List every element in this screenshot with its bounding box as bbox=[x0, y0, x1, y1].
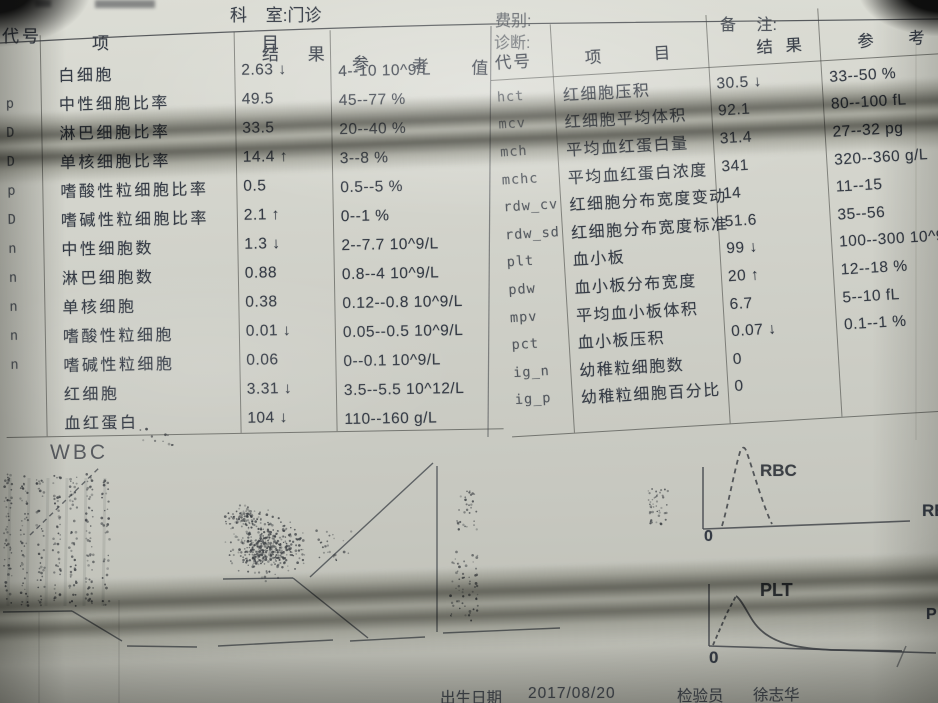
row-reference: 33--50 % bbox=[821, 62, 938, 87]
row-reference bbox=[839, 374, 938, 381]
row-result: 0 bbox=[727, 372, 840, 397]
row-item: 单核细胞 bbox=[44, 290, 238, 317]
row-result: 0 bbox=[725, 345, 838, 370]
row-code: pct bbox=[506, 334, 569, 354]
row-reference: 3.5--5.5 10^12/L bbox=[336, 372, 506, 400]
row-code: mcv bbox=[493, 114, 556, 134]
right-header-item: 项 目 bbox=[584, 38, 695, 68]
cbc-table-left: 白细胞2.63 ↓4--10 10^9/Lp中性细胞比率49.545--77 %… bbox=[0, 47, 507, 441]
glare-band bbox=[0, 551, 938, 666]
row-code: rdw_sd bbox=[500, 224, 563, 244]
row-item: 嗜酸性粒细胞 bbox=[45, 319, 239, 346]
plt-axis-zero: 0 bbox=[709, 648, 718, 668]
cut-text-fragment bbox=[95, 0, 155, 8]
row-code: n bbox=[4, 298, 44, 315]
row-item: 中性细胞数 bbox=[43, 232, 237, 259]
row-reference: 0--1 % bbox=[333, 198, 503, 226]
row-code bbox=[6, 393, 46, 394]
row-code: D bbox=[3, 211, 43, 228]
row-code: mpv bbox=[505, 306, 568, 326]
row-reference: 0.5--5 % bbox=[332, 169, 502, 197]
row-result: 49.5 bbox=[235, 89, 331, 109]
row-code: D bbox=[1, 124, 41, 141]
row-reference: 0--0.1 10^9/L bbox=[335, 343, 505, 371]
row-result: 0.01 ↓ bbox=[239, 321, 335, 341]
row-code: hct bbox=[491, 86, 554, 106]
row-result: 0.38 bbox=[238, 292, 334, 312]
row-reference: 27--32 pg bbox=[824, 117, 938, 142]
row-result: 30.5 ↓ bbox=[709, 69, 822, 94]
row-reference: 35--56 bbox=[829, 200, 938, 225]
row-result: 104 ↓ bbox=[240, 408, 336, 428]
left-header-code: 代号 bbox=[2, 22, 42, 47]
row-result: 2.63 ↓ bbox=[234, 60, 330, 80]
row-reference: 12--18 % bbox=[832, 255, 938, 280]
examiner-name: 徐志华 bbox=[753, 683, 800, 703]
row-code: p bbox=[2, 182, 42, 199]
row-code: ig_n bbox=[508, 362, 571, 382]
rbc-axis-zero: 0 bbox=[704, 528, 713, 546]
row-reference: 11--15 bbox=[827, 172, 938, 197]
row-result: 33.5 bbox=[235, 118, 331, 138]
birth-date-label: 出生日期 bbox=[440, 686, 502, 703]
row-item: 单核细胞比率 bbox=[42, 145, 236, 172]
row-reference: 45--77 % bbox=[331, 82, 501, 110]
row-result: 0.5 bbox=[236, 176, 332, 196]
right-header-reference: 参 考 值 bbox=[856, 20, 938, 52]
row-code: n bbox=[5, 356, 45, 373]
cbc-table-right: 代号 项 目 结 果 参 考 值 hct红细胞压积30.5 ↓33--50 %m… bbox=[489, 21, 938, 445]
row-result: 3.31 ↓ bbox=[240, 379, 336, 399]
row-reference: 0.8--4 10^9/L bbox=[334, 256, 504, 284]
examiner-label: 检验员 bbox=[677, 684, 724, 703]
row-reference bbox=[838, 346, 938, 353]
row-code: p bbox=[1, 95, 41, 112]
row-item: 血红蛋白 bbox=[46, 406, 240, 433]
row-reference: 0.12--0.8 10^9/L bbox=[334, 285, 504, 313]
row-item: 嗜碱性粒细胞 bbox=[45, 348, 239, 375]
row-code: ig_p bbox=[509, 389, 572, 409]
row-item: 淋巴细胞比率 bbox=[41, 116, 235, 143]
row-reference: 4--10 10^9/L bbox=[330, 53, 500, 81]
plt-axis-edge-label: P bbox=[926, 606, 937, 624]
wbc-scattergram-label: WBC bbox=[50, 441, 108, 465]
rbc-axis-edge-label: RB bbox=[922, 501, 938, 521]
row-item: 白细胞 bbox=[40, 58, 234, 85]
lab-report-photo: 科 室:门诊 费别: 备 注: 诊断: 代号 项 目 结 果 参 考 值 白细胞… bbox=[0, 0, 938, 703]
table-bottom-border bbox=[512, 410, 938, 438]
row-code bbox=[6, 422, 46, 423]
row-item: 嗜碱性粒细胞比率 bbox=[43, 203, 237, 230]
paper-crease bbox=[118, 600, 120, 703]
row-result: 0.06 bbox=[239, 350, 335, 370]
row-result: 31.4 bbox=[712, 124, 825, 149]
row-reference: 80--100 fL bbox=[822, 89, 938, 114]
row-code: pdw bbox=[503, 279, 566, 299]
row-reference: 3--8 % bbox=[332, 140, 502, 168]
right-header-code: 代号 bbox=[494, 48, 532, 74]
row-item: 淋巴细胞数 bbox=[44, 261, 238, 288]
row-reference: 0.05--0.5 10^9/L bbox=[335, 314, 505, 342]
paper-crease bbox=[38, 612, 40, 703]
row-result: 0.07 ↓ bbox=[724, 317, 837, 342]
row-code: mch bbox=[495, 141, 558, 161]
row-result: 14.4 ↑ bbox=[236, 147, 332, 167]
row-result: 6.7 bbox=[722, 290, 835, 315]
row-code: plt bbox=[501, 251, 564, 271]
row-result: 341 bbox=[714, 152, 827, 177]
row-item: 红细胞 bbox=[46, 377, 240, 404]
right-header-result: 结 果 bbox=[756, 31, 807, 58]
row-code: D bbox=[2, 153, 42, 170]
department-label: 科 室:门诊 bbox=[230, 1, 321, 26]
cut-text-fragment bbox=[35, 0, 51, 7]
row-result: 51.6 bbox=[717, 207, 830, 232]
fee-type-label: 费别: bbox=[495, 7, 531, 31]
birth-date-value: 2017/08/20 bbox=[528, 685, 616, 703]
row-item: 嗜酸性粒细胞比率 bbox=[42, 174, 236, 201]
row-reference: 0.1--1 % bbox=[836, 310, 938, 335]
paper-crease bbox=[915, 40, 917, 440]
row-result: 2.1 ↑ bbox=[237, 205, 333, 225]
row-code: n bbox=[5, 327, 45, 344]
row-result: 92.1 bbox=[711, 97, 824, 122]
row-result: 99 ↓ bbox=[719, 234, 832, 259]
row-result: 20 ↑ bbox=[720, 262, 833, 287]
row-reference: 320--360 g/L bbox=[826, 145, 938, 170]
row-reference: 110--160 g/L bbox=[336, 401, 506, 429]
row-reference: 2--7.7 10^9/L bbox=[333, 227, 503, 255]
row-reference: 100--300 10^9/L bbox=[831, 227, 938, 252]
row-code: rdw_cv bbox=[498, 196, 561, 216]
row-result: 1.3 ↓ bbox=[237, 234, 333, 254]
row-item: 中性细胞比率 bbox=[41, 87, 235, 114]
row-code bbox=[0, 74, 40, 75]
rbc-histogram-label: RBC bbox=[760, 461, 797, 481]
plt-histogram-label: PLT bbox=[760, 580, 793, 601]
row-reference: 20--40 % bbox=[331, 111, 501, 139]
row-result: 14 bbox=[716, 179, 829, 204]
row-reference: 5--10 fL bbox=[834, 282, 938, 307]
row-code: n bbox=[4, 269, 44, 286]
row-result: 0.88 bbox=[238, 263, 334, 283]
row-code: n bbox=[3, 240, 43, 257]
row-code: mchc bbox=[496, 169, 559, 189]
